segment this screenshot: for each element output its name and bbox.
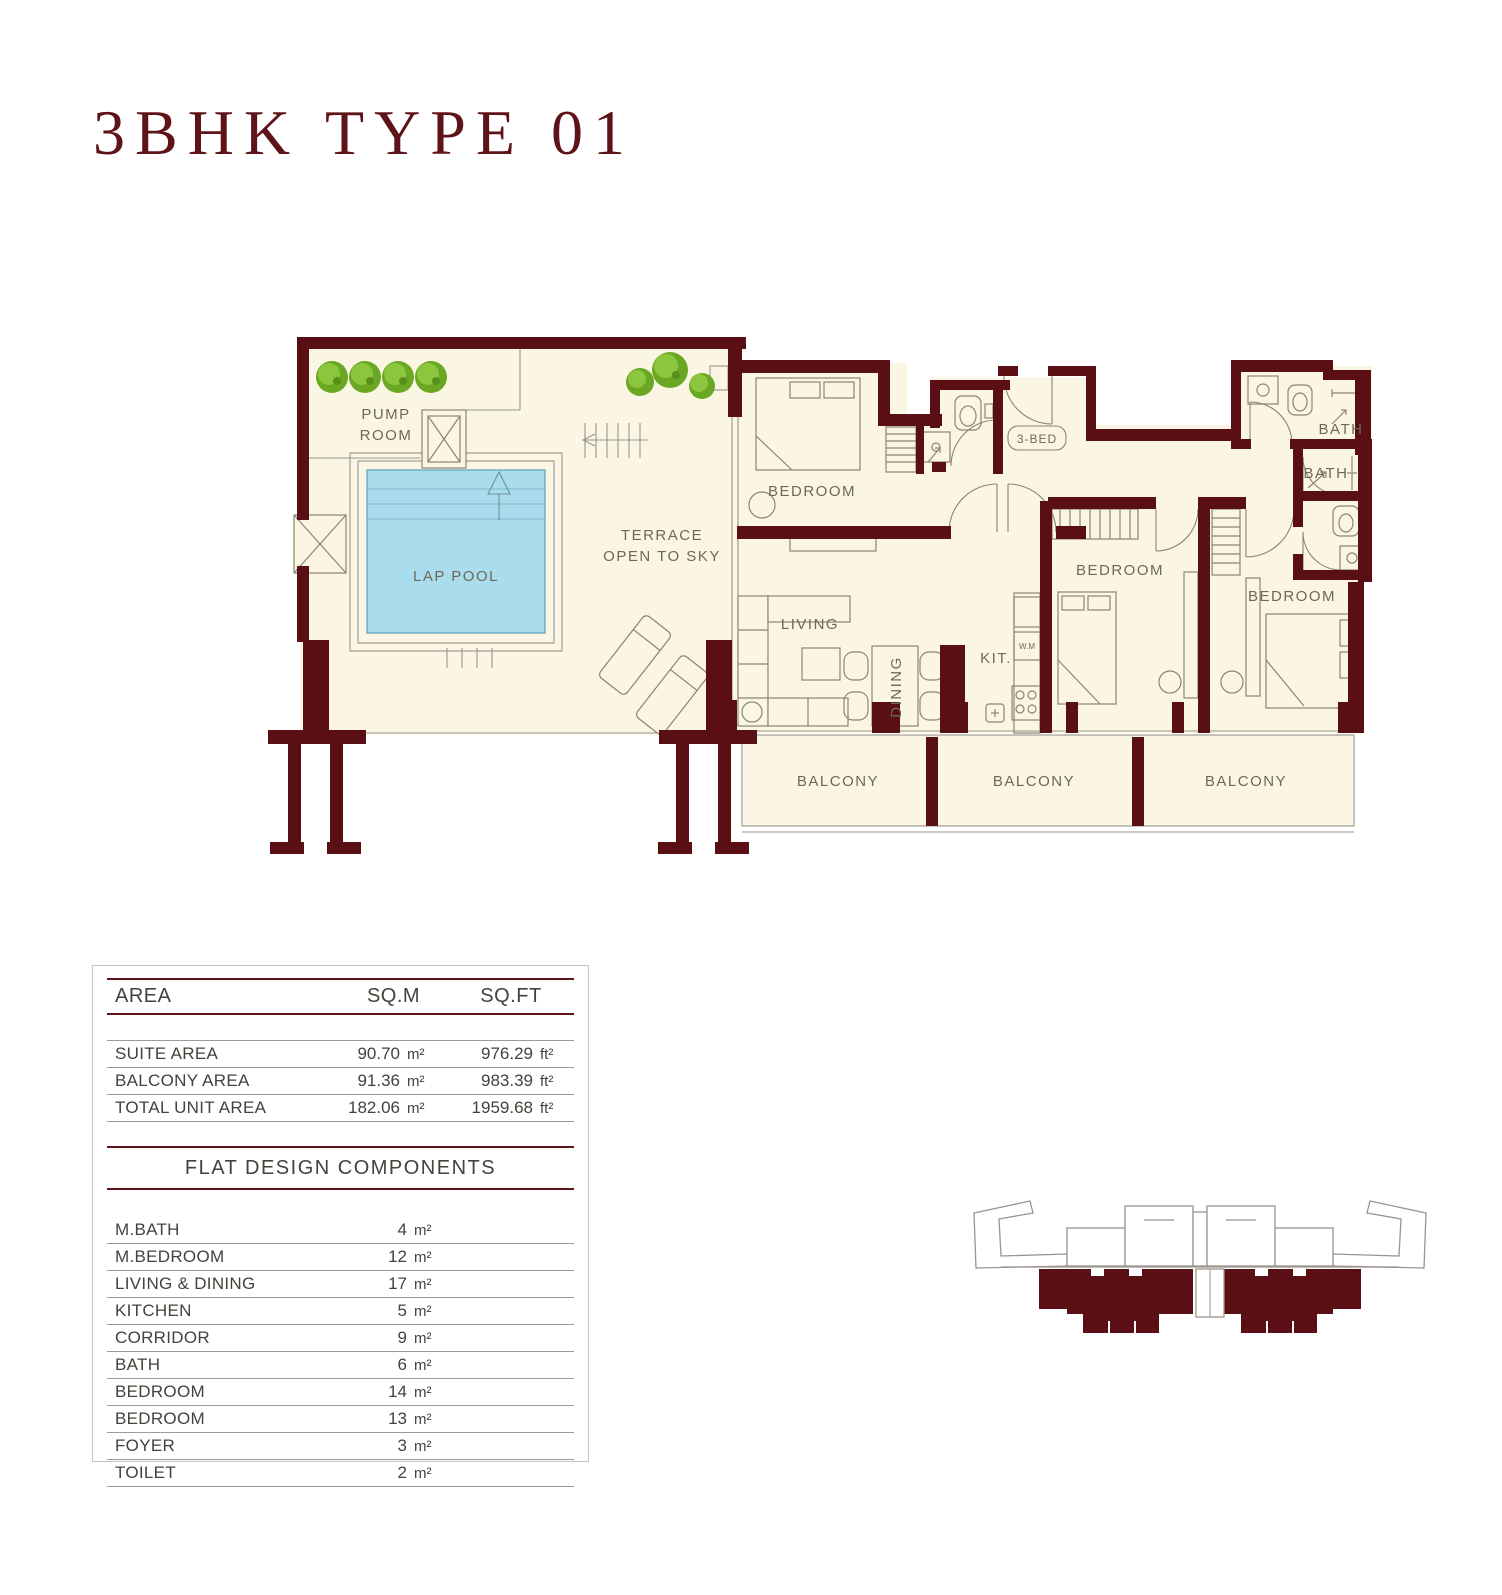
lap-pool-label: LAP POOL: [413, 568, 499, 585]
dining-label: DINING: [888, 656, 905, 718]
bed: [756, 378, 860, 470]
balcony-label: BALCONY: [993, 773, 1075, 790]
building-outline: [974, 1201, 1426, 1268]
key-plan-svg: [958, 1158, 1442, 1333]
table-row: KITCHEN5m²: [107, 1298, 574, 1325]
key-plan: [958, 1158, 1442, 1333]
divider: [107, 1188, 574, 1190]
col-sqm: SQ.M: [339, 985, 448, 1008]
terrace-label: TERRACE: [621, 527, 703, 544]
tree-icon: [316, 361, 348, 393]
table-row: TOILET2m²: [107, 1460, 574, 1487]
bedroom-label: BEDROOM: [1248, 588, 1336, 605]
page-title: 3BHK TYPE 01: [93, 96, 635, 170]
tree-icon: [382, 361, 414, 393]
table-row: BEDROOM14m²: [107, 1379, 574, 1406]
table-row: FOYER3m²: [107, 1433, 574, 1460]
bed: [1266, 614, 1354, 708]
floor-plan: PUMP ROOM LAP POOL TERRACE OPEN TO SKY B…: [240, 325, 1400, 875]
bath-label: BATH: [1304, 465, 1349, 482]
wm-label: W.M: [1019, 642, 1035, 651]
bath-label: BATH: [1319, 421, 1364, 438]
table-row: SUITE AREA90.70m²976.29ft²: [107, 1041, 574, 1068]
sofa: [738, 596, 768, 726]
balcony-label: BALCONY: [797, 773, 879, 790]
foyer-tag: 3-BED: [1008, 426, 1066, 450]
bedroom-label: BEDROOM: [768, 483, 856, 500]
tree-icon: [626, 368, 654, 396]
table-row: BEDROOM13m²: [107, 1406, 574, 1433]
svg-text:ROOM: ROOM: [360, 427, 413, 444]
components-table-rows: M.BATH4m²M.BEDROOM12m²LIVING & DINING17m…: [107, 1217, 574, 1487]
area-table-rows: SUITE AREA90.70m²976.29ft²BALCONY AREA91…: [107, 1040, 574, 1122]
tree-icon: [689, 373, 715, 399]
kitchen-label: KIT.: [980, 650, 1012, 667]
tree-icon: [652, 352, 688, 388]
table-row: M.BEDROOM12m²: [107, 1244, 574, 1271]
table-row: BATH6m²: [107, 1352, 574, 1379]
living-label: LIVING: [781, 616, 839, 633]
area-table-header: AREA SQ.M SQ.FT: [107, 980, 574, 1013]
table-row: BALCONY AREA91.36m²983.39ft²: [107, 1068, 574, 1095]
floor-plan-svg: PUMP ROOM LAP POOL TERRACE OPEN TO SKY B…: [240, 325, 1400, 875]
bedroom-label: BEDROOM: [1076, 562, 1164, 579]
table-row: CORRIDOR9m²: [107, 1325, 574, 1352]
table-row: M.BATH4m²: [107, 1217, 574, 1244]
divider: [107, 1013, 574, 1015]
svg-text:3-BED: 3-BED: [1017, 432, 1057, 446]
table-row: TOTAL UNIT AREA182.06m²1959.68ft²: [107, 1095, 574, 1122]
col-sqft: SQ.FT: [448, 985, 574, 1008]
svg-text:OPEN TO SKY: OPEN TO SKY: [603, 548, 721, 565]
balcony-label: BALCONY: [1205, 773, 1287, 790]
col-area: AREA: [107, 985, 339, 1008]
components-title: FLAT DESIGN COMPONENTS: [93, 1148, 588, 1188]
pump-room-label: PUMP: [361, 406, 410, 423]
tree-icon: [349, 361, 381, 393]
table-row: LIVING & DINING17m²: [107, 1271, 574, 1298]
tree-icon: [415, 361, 447, 393]
area-tables: AREA SQ.M SQ.FT SUITE AREA90.70m²976.29f…: [92, 965, 589, 1462]
bed: [1058, 592, 1116, 704]
